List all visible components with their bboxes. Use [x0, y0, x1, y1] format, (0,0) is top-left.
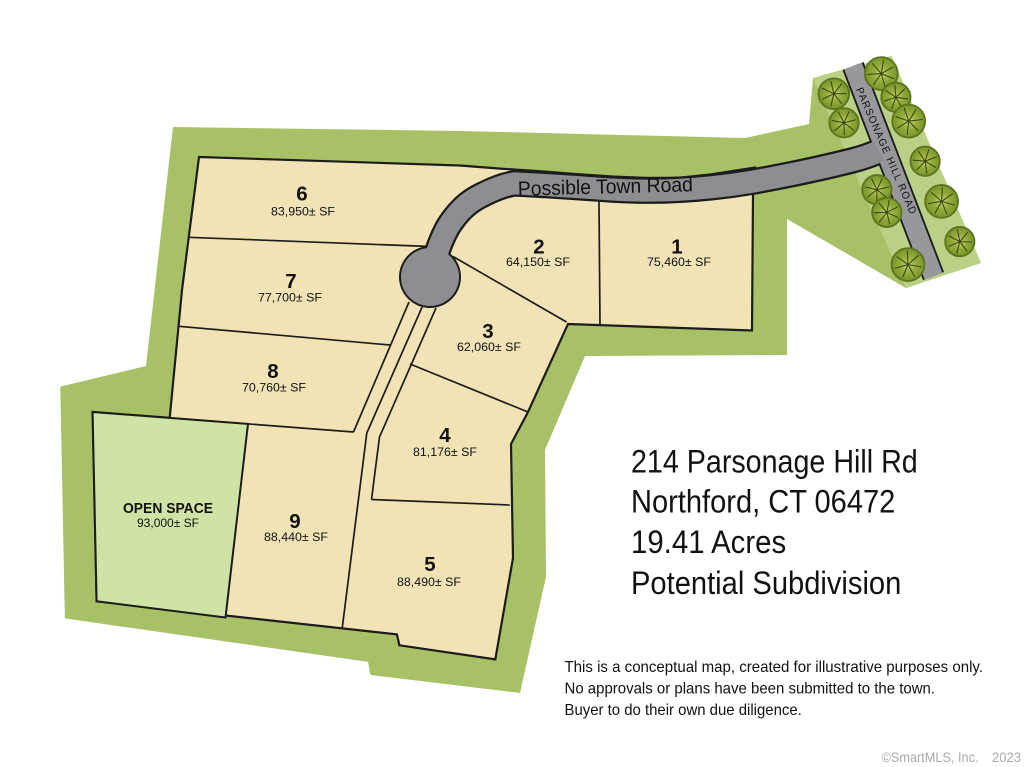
svg-text:62,060± SF: 62,060± SF [457, 340, 521, 354]
svg-text:No approvals or plans have bee: No approvals or plans have been submitte… [565, 680, 936, 697]
svg-text:Buyer to do their own due dili: Buyer to do their own due diligence. [565, 702, 802, 719]
svg-text:Northford, CT 06472: Northford, CT 06472 [631, 484, 895, 520]
svg-text:88,490± SF: 88,490± SF [397, 575, 461, 589]
svg-text:93,000± SF: 93,000± SF [137, 516, 199, 530]
svg-text:70,760± SF: 70,760± SF [242, 381, 306, 395]
svg-text:77,700± SF: 77,700± SF [258, 291, 322, 305]
svg-text:64,150± SF: 64,150± SF [506, 255, 570, 269]
svg-text:5: 5 [424, 553, 435, 576]
svg-text:214 Parsonage Hill Rd: 214 Parsonage Hill Rd [631, 444, 918, 480]
svg-text:19.41 Acres: 19.41 Acres [631, 524, 786, 560]
svg-text:4: 4 [439, 424, 451, 447]
svg-text:6: 6 [296, 183, 307, 206]
svg-text:©SmartMLS, Inc.: ©SmartMLS, Inc. [882, 750, 979, 765]
svg-text:83,950± SF: 83,950± SF [271, 205, 335, 219]
svg-text:OPEN SPACE: OPEN SPACE [123, 500, 213, 517]
svg-text:88,440± SF: 88,440± SF [264, 530, 328, 544]
svg-text:2023: 2023 [992, 750, 1021, 765]
svg-text:81,176± SF: 81,176± SF [413, 445, 477, 459]
svg-text:Potential Subdivision: Potential Subdivision [631, 565, 901, 601]
svg-text:75,460± SF: 75,460± SF [647, 255, 711, 269]
svg-text:Possible Town Road: Possible Town Road [518, 173, 694, 201]
svg-text:This is a conceptual map, crea: This is a conceptual map, created for il… [565, 659, 984, 676]
